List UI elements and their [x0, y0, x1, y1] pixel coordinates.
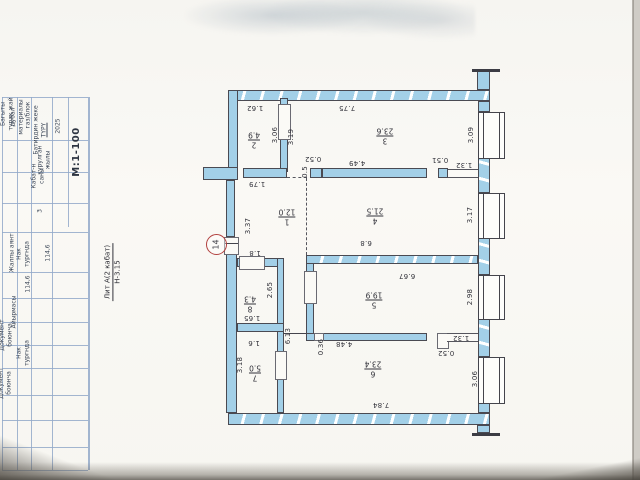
wall-room4-room5 — [306, 255, 478, 264]
window-pane-line — [483, 194, 484, 238]
table-grid-hline — [2, 203, 88, 204]
table-cell-text: 114,6 — [24, 275, 32, 292]
outer-wall-left — [226, 253, 237, 413]
stamp-watermark — [185, 0, 475, 44]
table-cell-text: 2025 — [54, 118, 62, 133]
outer-wall-left — [226, 180, 235, 237]
door-room8 — [239, 256, 265, 270]
dimension-label: 1.8 — [249, 249, 261, 257]
table-cell-text: М:1-100 — [71, 127, 84, 176]
room-number: 7 — [249, 373, 261, 383]
window-pane-line — [483, 113, 484, 158]
dimension-label: 3.37 — [244, 218, 252, 234]
room-area: 4.3 — [244, 295, 256, 304]
scanned-floorplan-document: { "document": { "type": "technical passp… — [0, 0, 640, 480]
dimension-label: 3.19 — [287, 129, 295, 145]
table-grid-vline — [17, 97, 18, 470]
wall-room3-room4 — [322, 168, 427, 178]
dimension-label: 3.09 — [467, 127, 475, 143]
marker-circle: 14 — [206, 234, 227, 255]
window-symbol — [478, 193, 505, 239]
dimension-label: 3.18 — [236, 357, 244, 373]
window-pane-line — [499, 194, 500, 238]
table-cell-text: Документбоюнча — [0, 319, 14, 350]
door-room7 — [275, 351, 287, 380]
scan-shadow — [0, 462, 640, 480]
window-symbol — [478, 357, 505, 404]
dimension-label: 1.6 — [248, 339, 260, 347]
window-pane-line — [499, 358, 500, 403]
dimension-label: 1.32 — [453, 334, 469, 342]
table-cell-text: Нактургнда — [16, 340, 31, 366]
table-cell-text: дубалматериалы — [10, 99, 25, 134]
dimension-label: 1.62 — [247, 104, 263, 112]
room-area: 12.0 — [279, 208, 296, 217]
dimension-label: 7.84 — [373, 401, 389, 409]
table-cell-text: Кабат-нсаны — [31, 164, 46, 189]
table-grid-hline — [2, 97, 88, 98]
room-number: 1 — [279, 217, 296, 227]
dashed-boundary-v — [306, 178, 307, 255]
dimension-label: 0.52 — [305, 155, 321, 163]
outer-wall-stub-top — [477, 71, 490, 90]
outer-wall-left — [228, 90, 238, 168]
table-grid-hline — [2, 420, 88, 421]
dimension-label: 7.75 — [339, 104, 355, 112]
room-area-label: 112.0 — [279, 208, 296, 227]
room-number: 4 — [367, 216, 384, 226]
room-area-label: 623.4 — [365, 360, 382, 379]
dimension-label: 4.49 — [349, 159, 365, 167]
table-cell-text: Нактургнда — [16, 241, 31, 267]
table-grid-hline — [2, 368, 88, 369]
room-area-label: 323.6 — [377, 127, 394, 146]
outer-wall-left-jog — [203, 167, 238, 180]
outer-wall-right — [478, 157, 490, 193]
dimension-label: 3.17 — [466, 207, 474, 223]
dimension-label: 4.48 — [336, 340, 352, 348]
dimension-label: 1.32 — [456, 161, 472, 169]
door-room5 — [304, 271, 317, 304]
outer-wall-right — [478, 318, 490, 357]
opening-room3-right — [448, 169, 478, 178]
outer-wall-top — [228, 90, 490, 101]
room-area-label: 84.3 — [244, 295, 256, 314]
room-area-label: 75.0 — [249, 364, 261, 383]
window-symbol — [478, 112, 505, 159]
room-number: 8 — [244, 304, 256, 314]
table-cell-text: 3 — [36, 209, 44, 213]
table-grid-vline — [88, 97, 90, 470]
table-cell-text: газ/блок — [24, 102, 32, 129]
dimension-label: 0.51 — [432, 156, 448, 164]
room-area: 21.5 — [367, 207, 384, 216]
room-number: 6 — [365, 369, 382, 379]
table-grid-vline — [52, 97, 53, 470]
outer-wall-right — [478, 101, 490, 112]
room-area-label: 421.5 — [367, 207, 384, 226]
room-number: 2 — [248, 140, 260, 150]
table-cell-text: Документбоюнча — [0, 367, 13, 398]
dimension-label: 2.65 — [266, 282, 274, 298]
room-area: 19.9 — [366, 291, 383, 300]
wall-pier-05 — [310, 168, 322, 178]
room-number: 3 — [377, 136, 394, 146]
room-area: 4.9 — [248, 131, 260, 140]
wall-cap-bottom — [472, 433, 500, 436]
litera-label: Лит А(2 кабат) Н-3.15 — [103, 243, 122, 301]
table-grid-vline — [2, 97, 3, 470]
wall-pier-051 — [438, 168, 448, 178]
dimension-label: 6.13 — [284, 328, 292, 344]
room-area: 5.0 — [249, 364, 261, 373]
dimension-label: 6.67 — [399, 272, 415, 280]
dimension-label: 2.98 — [466, 289, 474, 305]
room-area-label: 24.9 — [248, 131, 260, 150]
dimension-label: 0.36 — [317, 339, 325, 355]
page-edge — [632, 0, 634, 480]
table-grid-vline — [68, 97, 69, 227]
paper-sheet: Багытытурак жайдубалматериалыгаз/блокБат… — [0, 0, 633, 480]
room-area: 23.6 — [377, 127, 394, 136]
room-area-label: 519.9 — [366, 291, 383, 310]
outer-wall-stub-bottom — [477, 425, 490, 433]
dimension-label: 1.65 — [244, 314, 260, 322]
dimension-label: 0.52 — [438, 349, 454, 357]
window-pane-line — [499, 113, 500, 158]
window-pane-line — [483, 276, 484, 319]
room-number: 5 — [366, 300, 383, 310]
wall-room2-room1 — [243, 168, 287, 178]
dimension-label: 3.06 — [471, 371, 479, 387]
window-symbol — [478, 275, 505, 320]
window-pane-line — [483, 358, 484, 403]
outer-wall-right — [478, 237, 490, 275]
litera-line1: Лит А(2 кабат) — [103, 243, 113, 301]
wall-room8-right — [277, 258, 284, 331]
dimension-label: 6.8 — [360, 239, 372, 247]
window-pane-line — [499, 276, 500, 319]
marker-number: 14 — [212, 239, 221, 249]
outer-wall-bottom — [228, 413, 490, 425]
table-grid-hline — [2, 395, 88, 396]
dimension-label: 3.06 — [271, 127, 279, 143]
dimension-label: 0.5 — [301, 166, 309, 178]
room-area: 23.4 — [365, 360, 382, 369]
dimension-label: 1.79 — [249, 180, 265, 188]
wall-cap-top — [472, 69, 500, 72]
litera-line2: Н-3.15 — [114, 243, 123, 301]
table-cell-text: 114,6 — [44, 244, 52, 261]
